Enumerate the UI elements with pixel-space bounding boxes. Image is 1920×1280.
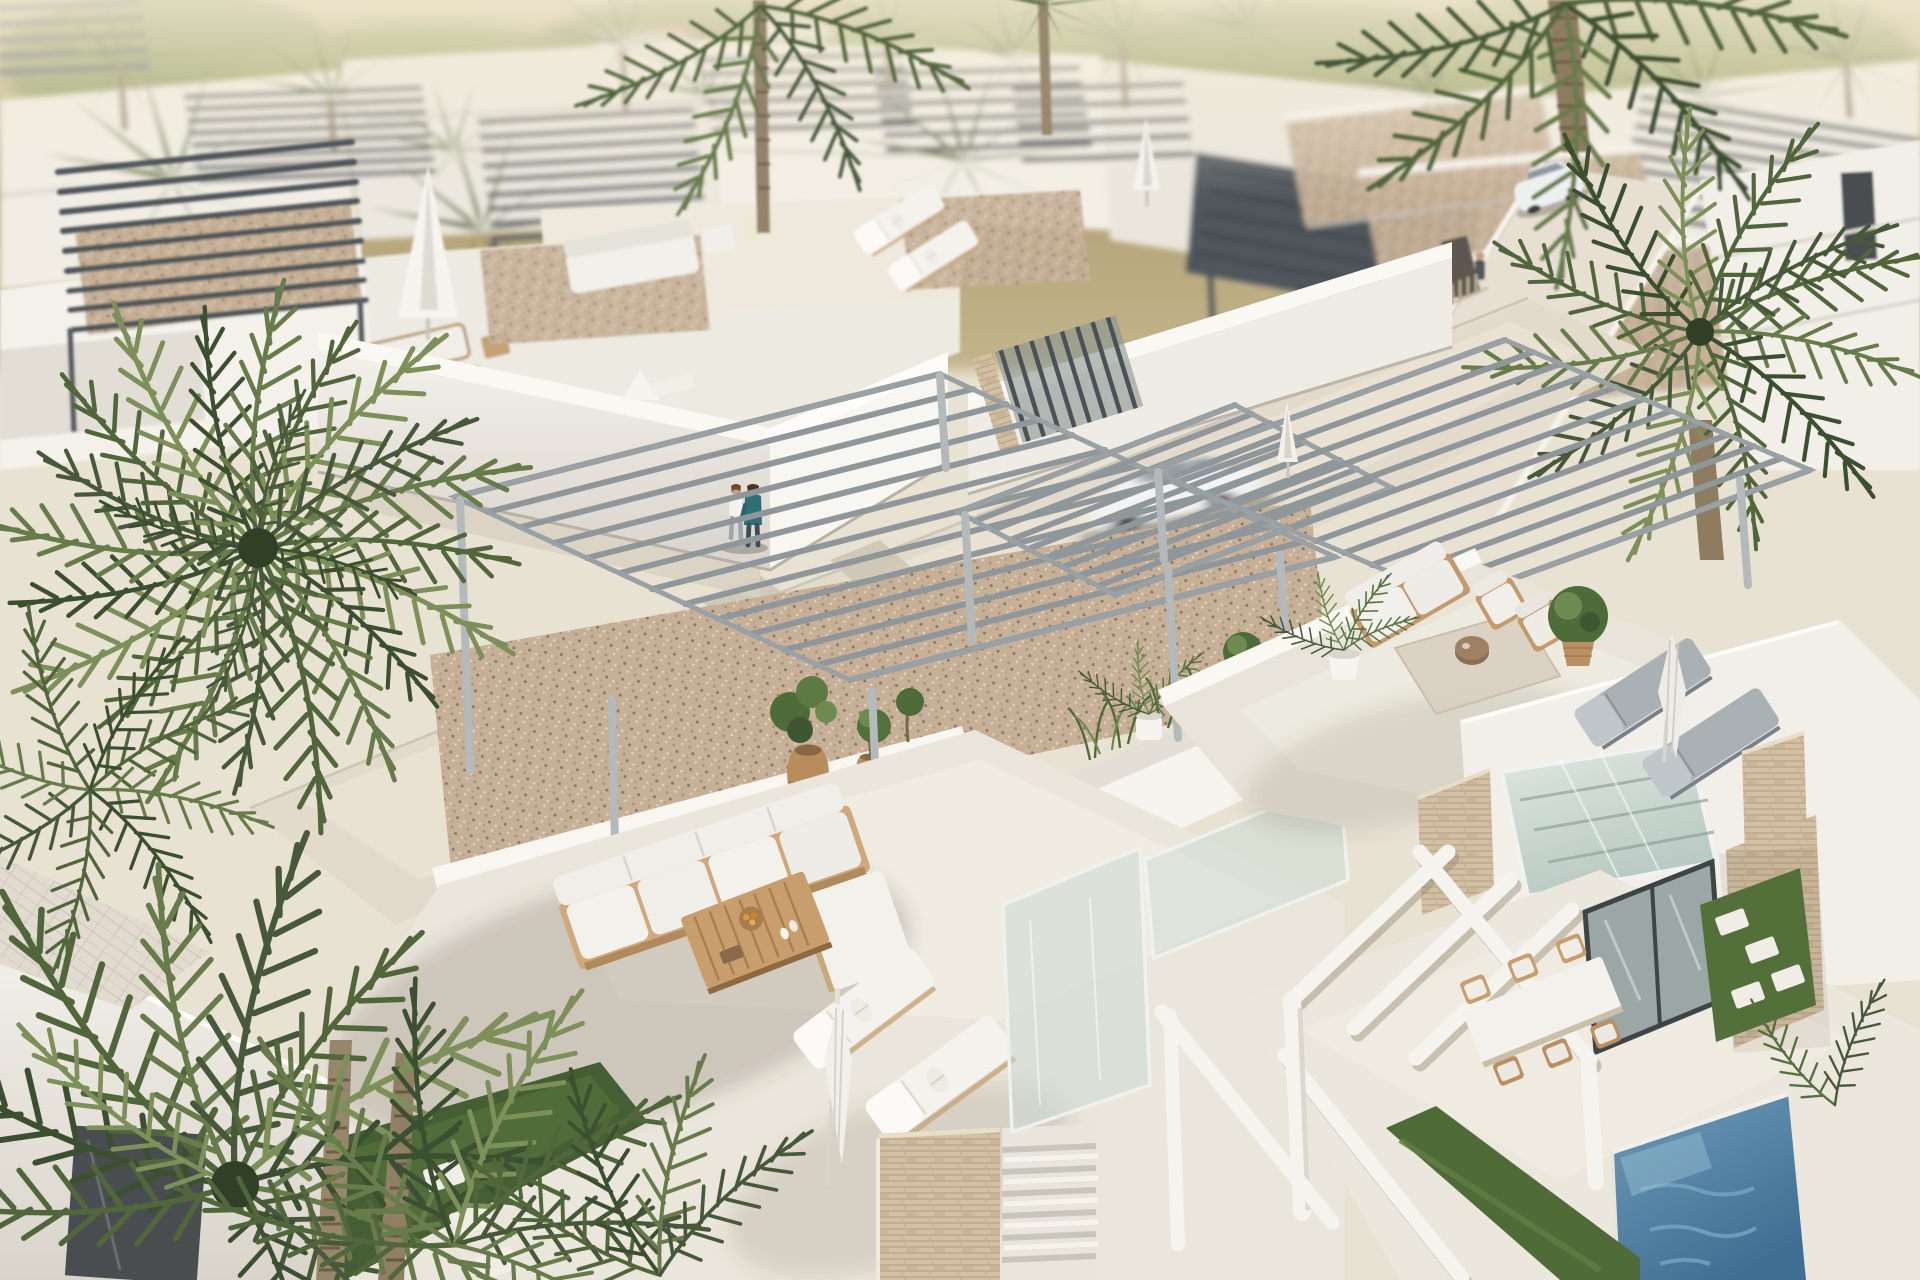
stone-pillar-center (878, 1132, 1000, 1280)
window-far-right (1841, 171, 1878, 261)
round-coffee-table (1455, 636, 1489, 665)
aerial-villa-render (0, 0, 1920, 1280)
screenshot-root (0, 0, 1920, 1280)
staircase-center (1002, 1124, 1098, 1280)
